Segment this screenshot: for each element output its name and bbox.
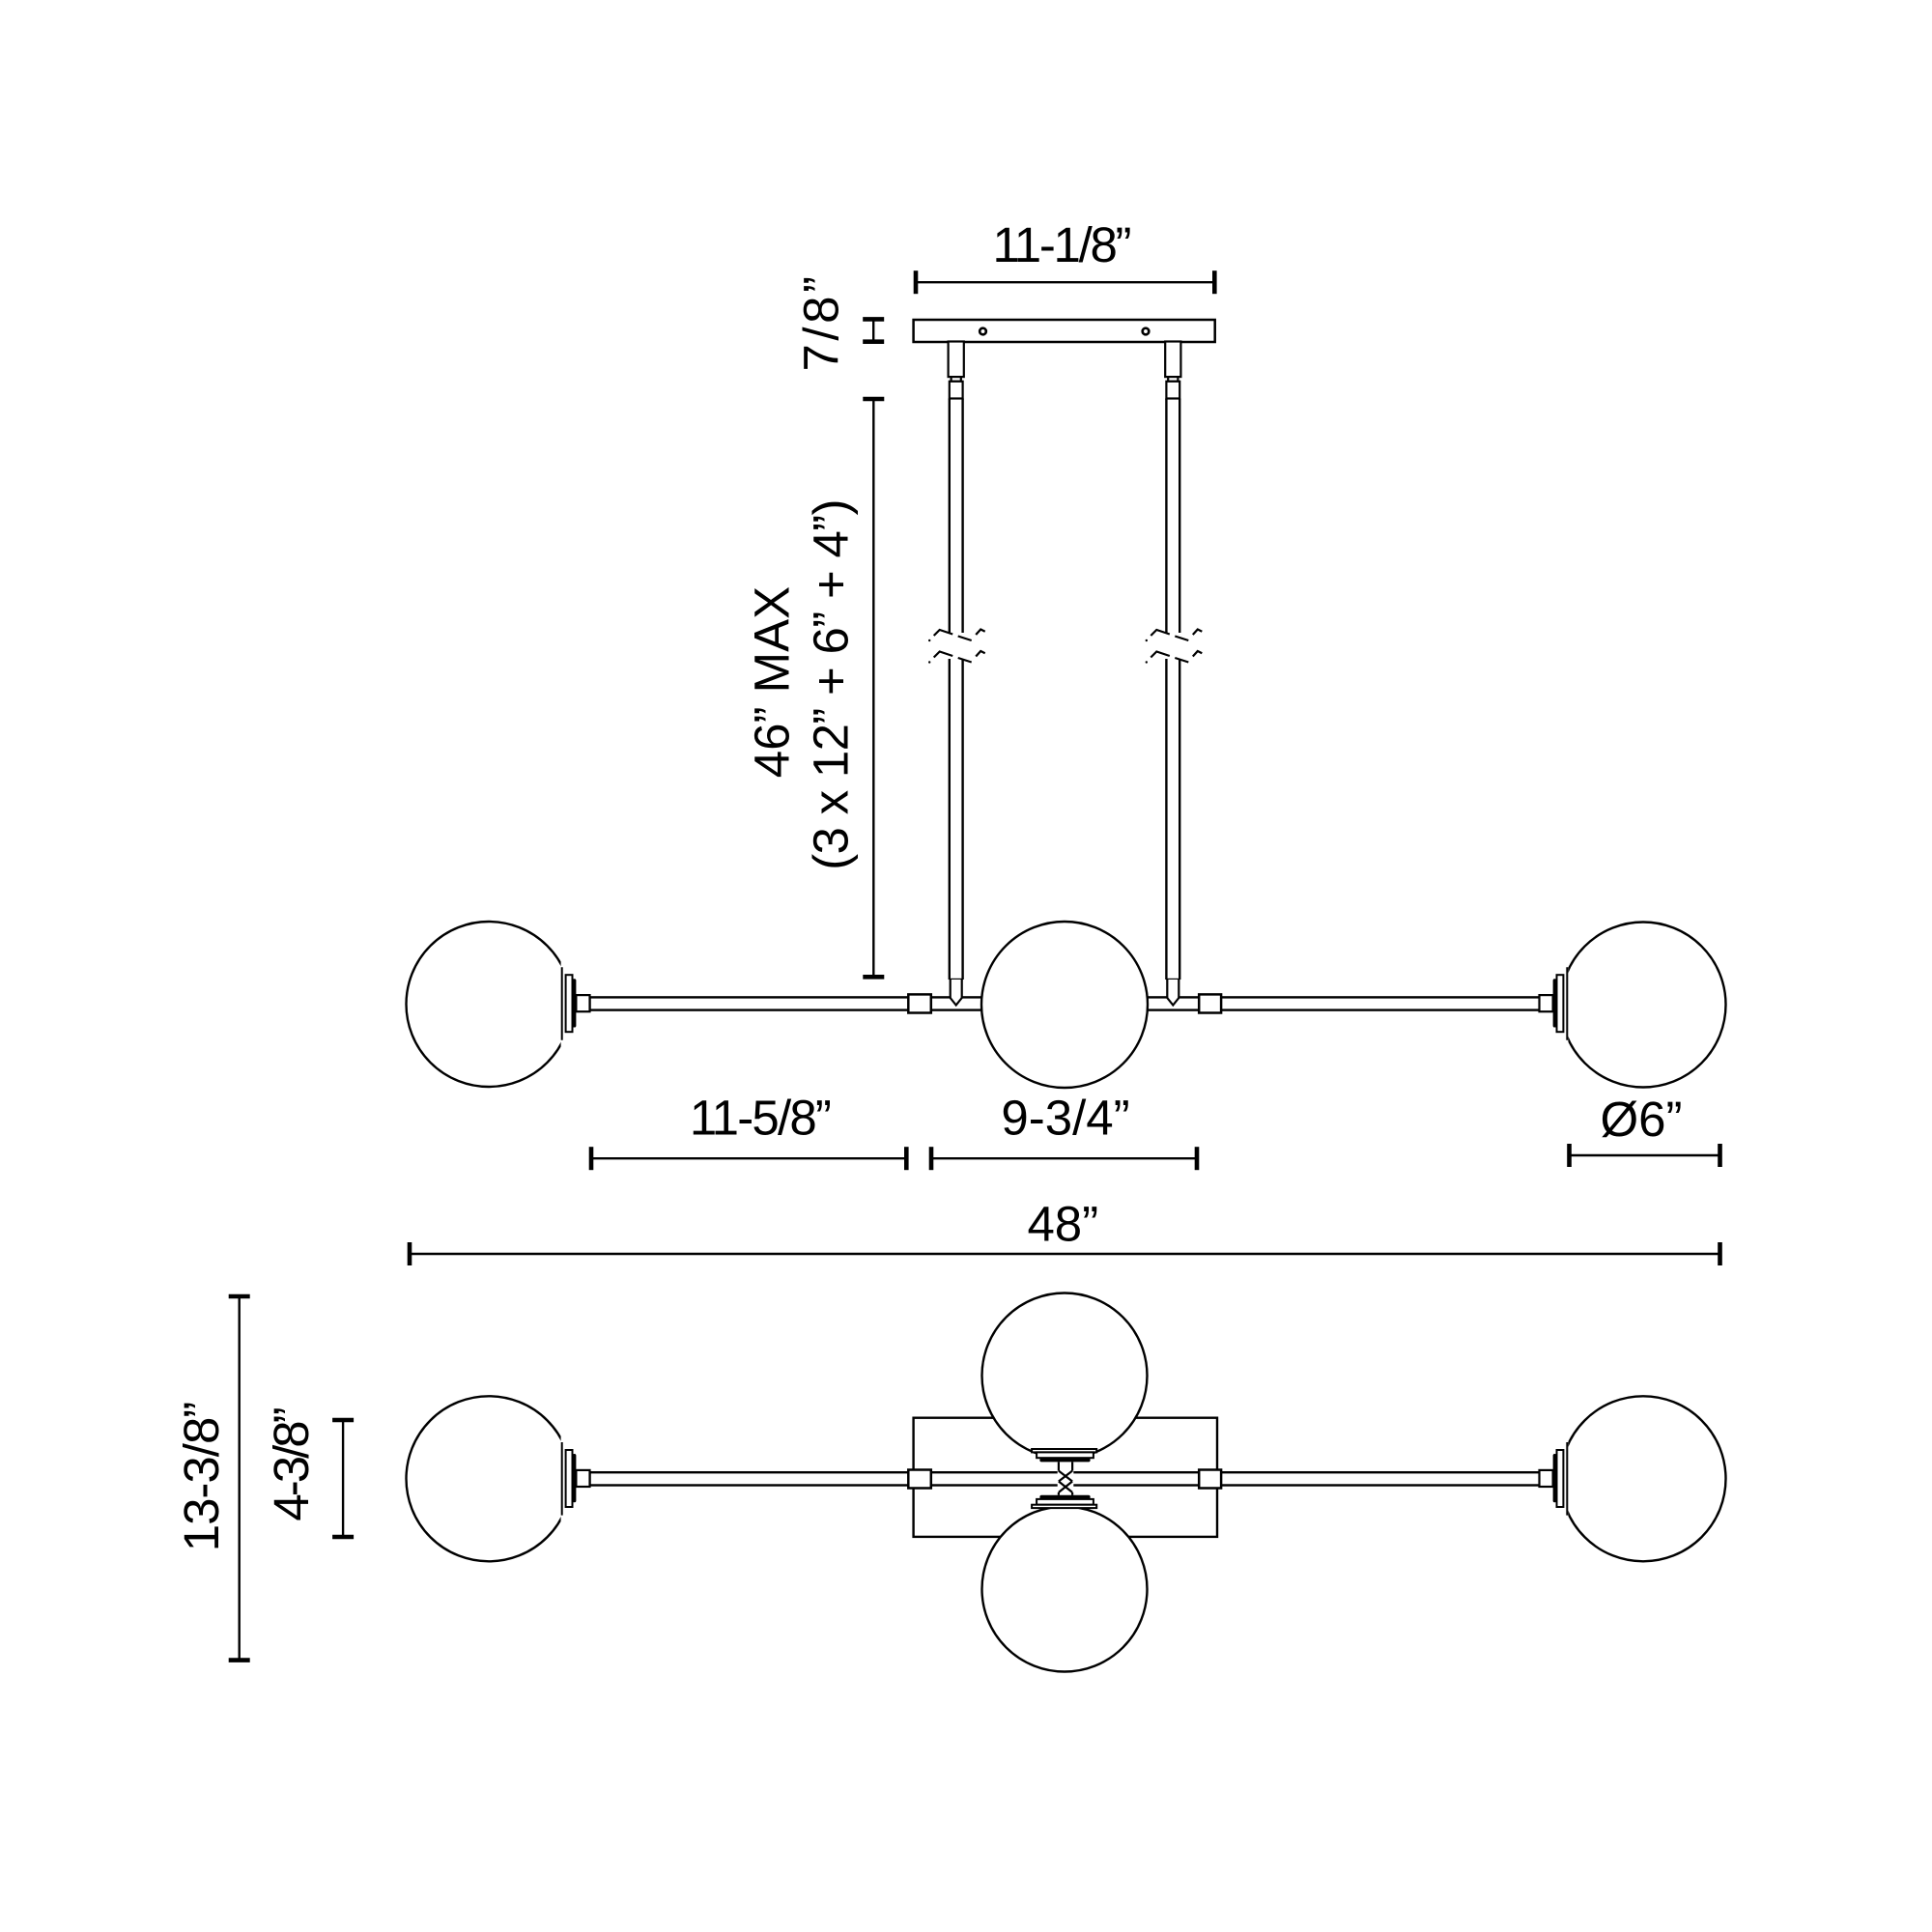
svg-text:13-3/8”: 13-3/8” xyxy=(174,1403,229,1552)
svg-text:Ø6”: Ø6” xyxy=(1600,1092,1682,1147)
svg-text:4-3/8”: 4-3/8” xyxy=(264,1407,319,1520)
svg-text:48”: 48” xyxy=(1027,1197,1098,1252)
svg-text:9-3/4”: 9-3/4” xyxy=(1001,1091,1129,1146)
svg-text:46” MAX: 46” MAX xyxy=(745,586,800,778)
svg-text:11-5/8”: 11-5/8” xyxy=(690,1091,831,1146)
svg-text:7/8”: 7/8” xyxy=(794,273,849,372)
svg-text:(3 x 12” + 6” + 4”): (3 x 12” + 6” + 4”) xyxy=(804,499,859,870)
svg-text:11-1/8”: 11-1/8” xyxy=(993,217,1131,272)
